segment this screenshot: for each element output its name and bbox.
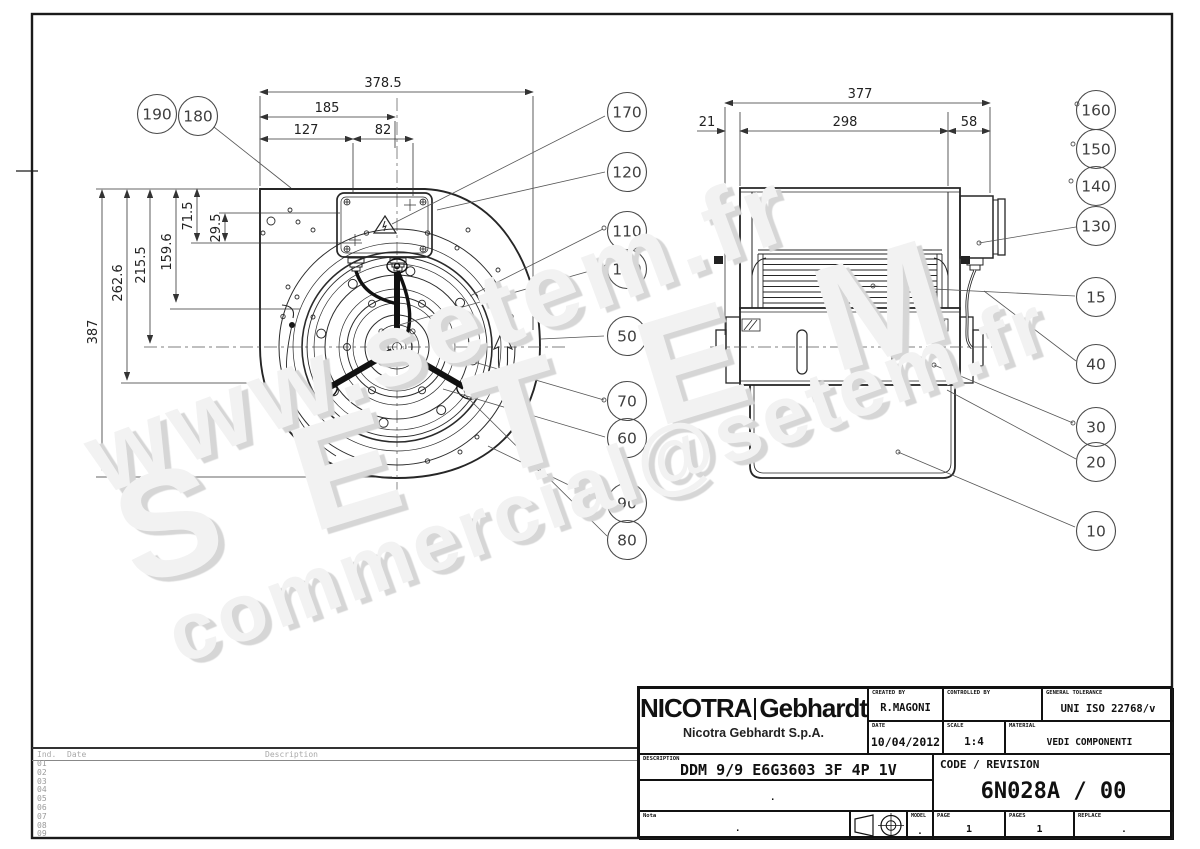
code-revision-value: 6N028A / 00: [934, 779, 1173, 804]
scroll-bottom-body: [750, 385, 955, 478]
date-value: 10/04/2012: [869, 735, 942, 749]
balloon-80: 80: [608, 521, 647, 560]
balloon-70: 70: [608, 382, 647, 421]
description-value: DDM 9/9 E6G3603 3F 4P 1V +SCT: [680, 761, 932, 780]
svg-text:120: 120: [612, 163, 642, 181]
model-label: MODEL: [911, 813, 926, 819]
clamp-bolt-right: [930, 319, 948, 331]
svg-text:90: 90: [617, 494, 637, 512]
company-name: Nicotra Gebhardt S.p.A.: [640, 726, 867, 740]
dot-mark: .: [908, 827, 932, 837]
balloon-170: 170: [608, 93, 647, 132]
balloon-leader-lines: [214, 102, 1079, 536]
svg-text:80: 80: [617, 531, 637, 549]
svg-text:140: 140: [1081, 177, 1111, 195]
title-block: NICOTRA Gebhardt Nicotra Gebhardt S.p.A.…: [637, 686, 1172, 838]
code-revision-label: CODE / REVISION: [940, 758, 1039, 771]
pages-label: PAGES: [1009, 813, 1026, 819]
dim-82: 82: [375, 123, 392, 138]
svg-text:70: 70: [617, 392, 637, 410]
pages-value: 1: [1006, 824, 1073, 835]
balloon-190: 190: [138, 95, 177, 134]
created-by-label: CREATED BY: [872, 690, 905, 696]
right-view-dimensions: [697, 103, 990, 335]
balloon-180: 180: [179, 97, 218, 136]
logo-gebhardt: Gebhardt: [759, 693, 867, 724]
revision-table: Ind. Date Description 01 02 03 04 05 06 …: [32, 747, 637, 840]
svg-text:30: 30: [1086, 418, 1106, 436]
inlet-corner-left: [752, 258, 766, 276]
revision-table-header: Ind. Date Description: [32, 749, 637, 761]
band-slot-left: [797, 330, 807, 374]
drawing-sheet: 378.5 185 127 82 387 262.6 215.5 159.6 7…: [0, 0, 1200, 849]
dot-mark: .: [735, 824, 740, 834]
motor: [960, 196, 1005, 348]
description-label: DESCRIPTION: [643, 756, 679, 762]
code-revision-cell: CODE / REVISION 6N028A / 00: [933, 754, 1174, 811]
clamp-bolt-left: [742, 319, 760, 331]
tolerance-cell: GENERAL TOLERANCE UNI ISO 22768/v: [1042, 688, 1174, 721]
controlled-by-cell: CONTROLLED BY: [943, 688, 1042, 721]
svg-text:170: 170: [612, 103, 642, 121]
balloon-50: 50: [608, 317, 647, 356]
balloon-100: 100: [608, 250, 647, 289]
logo-cell: NICOTRA Gebhardt Nicotra Gebhardt S.p.A.: [639, 688, 868, 754]
page-value: 1: [934, 824, 1004, 835]
band-slot-right: [892, 330, 902, 374]
page-cell: PAGE 1: [933, 811, 1005, 840]
dim-159-6: 159.6: [160, 233, 175, 270]
dim-127: 127: [294, 123, 319, 138]
svg-text:180: 180: [183, 107, 213, 125]
dim-298: 298: [833, 115, 858, 130]
balloon-10: 10: [1077, 512, 1116, 551]
pages-cell: PAGES 1: [1005, 811, 1074, 840]
dim-185: 185: [315, 101, 340, 116]
created-by-cell: CREATED BY R.MAGONI: [868, 688, 943, 721]
impeller-blades: [758, 250, 942, 308]
svg-text:160: 160: [1081, 101, 1111, 119]
dim-71-5: 71.5: [181, 202, 196, 231]
note-label: Nota: [643, 813, 656, 819]
right-view-dimension-labels: 377 21 298 58: [699, 87, 978, 130]
revision-col-ind: Ind.: [37, 750, 56, 759]
band-stub-left: [716, 330, 726, 366]
projection-symbol-cell: [850, 811, 907, 840]
replace-cell: REPLACE .: [1074, 811, 1174, 840]
crosshair-marks: [349, 199, 416, 246]
flange-bolt-right: [961, 256, 970, 264]
balloon-110: 110: [608, 212, 647, 251]
band-stub-right: [973, 330, 983, 366]
dim-58: 58: [961, 115, 978, 130]
flange-bolt-left: [714, 256, 723, 264]
revision-row: 09: [37, 830, 97, 839]
controlled-by-label: CONTROLLED BY: [947, 690, 990, 696]
svg-text:50: 50: [617, 327, 637, 345]
balloon-30: 30: [1077, 408, 1116, 447]
description-extra-cell: .: [639, 780, 933, 811]
material-value: VEDI COMPONENTI: [1006, 737, 1173, 748]
left-view-dimensions: [96, 92, 533, 477]
date-cell: DATE 10/04/2012: [868, 721, 943, 754]
date-label: DATE: [872, 723, 885, 729]
page-label: PAGE: [937, 813, 950, 819]
mounting-band: [710, 308, 995, 385]
dim-21: 21: [699, 115, 716, 130]
balloon-130: 130: [1077, 207, 1116, 246]
revision-col-date: Date: [67, 750, 86, 759]
svg-text:110: 110: [612, 222, 642, 240]
revision-col-description: Description: [265, 750, 318, 759]
svg-text:100: 100: [612, 260, 642, 278]
balloon-140: 140: [1077, 167, 1116, 206]
svg-text:60: 60: [617, 429, 637, 447]
tolerance-value: UNI ISO 22768/v: [1043, 703, 1173, 715]
balloon-150: 150: [1077, 130, 1116, 169]
left-view-scroll-housing: [144, 98, 566, 500]
dot-mark: .: [1075, 825, 1173, 835]
balloon-20: 20: [1077, 443, 1116, 482]
svg-text:10: 10: [1086, 522, 1106, 540]
balloon-15: 15: [1077, 278, 1116, 317]
model-cell: MODEL .: [907, 811, 933, 840]
dim-377: 377: [848, 87, 873, 102]
material-label: MATERIAL: [1009, 723, 1036, 729]
balloon-160: 160: [1077, 91, 1116, 130]
balloon-90: 90: [608, 484, 647, 523]
dim-378-5: 378.5: [364, 76, 401, 91]
svg-text:190: 190: [142, 105, 172, 123]
svg-text:40: 40: [1086, 355, 1106, 373]
part-balloons: 190 180 170 120 110 100 50 70 60 90 80 1…: [138, 91, 1116, 560]
material-cell: MATERIAL VEDI COMPONENTI: [1005, 721, 1174, 754]
motor-cables: [356, 271, 410, 342]
projection-symbol-icon: [851, 812, 906, 839]
dim-387: 387: [86, 320, 101, 345]
inlet-corner-right: [934, 258, 948, 276]
logo-nicotra: NICOTRA: [640, 693, 751, 724]
created-by-value: R.MAGONI: [869, 702, 942, 714]
company-logo: NICOTRA Gebhardt: [640, 693, 867, 724]
svg-text:130: 130: [1081, 217, 1111, 235]
note-cell: Nota .: [639, 811, 850, 840]
scale-value: 1:4: [944, 735, 1004, 748]
svg-text:15: 15: [1086, 288, 1106, 306]
scale-label: SCALE: [947, 723, 964, 729]
logo-divider: [754, 698, 756, 720]
right-view-housing: [710, 188, 1005, 478]
svg-text:20: 20: [1086, 453, 1106, 471]
description-cell: DESCRIPTION DDM 9/9 E6G3603 3F 4P 1V +SC…: [639, 754, 933, 780]
tolerance-label: GENERAL TOLERANCE: [1046, 690, 1102, 696]
left-view-dimension-labels: 378.5 185 127 82 387 262.6 215.5 159.6 7…: [86, 76, 402, 344]
dot-mark: .: [770, 793, 775, 803]
band-tab-left: [726, 317, 740, 383]
replace-label: REPLACE: [1078, 813, 1101, 819]
balloon-40: 40: [1077, 345, 1116, 384]
balloon-120: 120: [608, 153, 647, 192]
dim-29-5: 29.5: [209, 214, 224, 243]
balloon-60: 60: [608, 419, 647, 458]
dim-262-6: 262.6: [111, 264, 126, 301]
scale-cell: SCALE 1:4: [943, 721, 1005, 754]
svg-text:150: 150: [1081, 140, 1111, 158]
dim-215-5: 215.5: [134, 246, 149, 283]
